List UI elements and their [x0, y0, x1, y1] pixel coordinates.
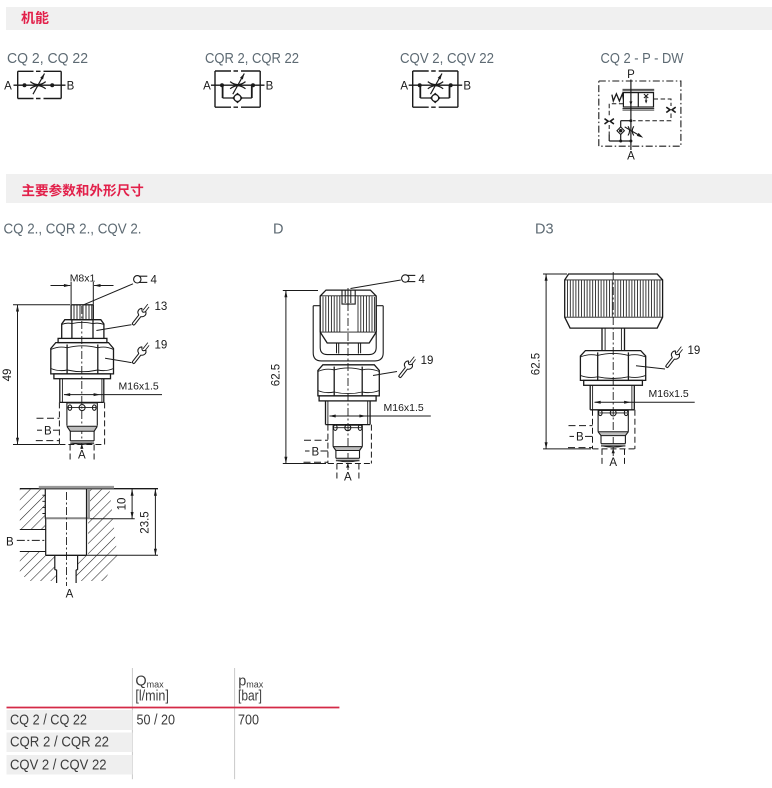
svg-text:A: A — [344, 472, 352, 484]
svg-text:CQV 2 / CQV 22: CQV 2 / CQV 22 — [10, 758, 107, 774]
svg-text:B: B — [67, 81, 75, 93]
svg-text:[l/min]: [l/min] — [135, 689, 169, 705]
svg-text:CQ 2, CQ 22: CQ 2, CQ 22 — [7, 51, 88, 67]
svg-text:M16x1.5: M16x1.5 — [649, 388, 689, 400]
svg-text:D3: D3 — [535, 222, 554, 238]
svg-text:CQV 2, CQV 22: CQV 2, CQV 22 — [400, 51, 494, 67]
svg-text:A: A — [609, 457, 617, 469]
svg-text:19: 19 — [421, 355, 434, 367]
svg-text:B: B — [312, 446, 320, 458]
svg-text:B: B — [266, 81, 274, 93]
svg-text:10: 10 — [117, 498, 129, 511]
svg-text:B: B — [44, 426, 52, 438]
svg-text:49: 49 — [2, 369, 14, 382]
svg-text:23.5: 23.5 — [140, 511, 152, 533]
svg-text:M16x1.5: M16x1.5 — [119, 381, 159, 393]
svg-text:4: 4 — [419, 274, 426, 286]
svg-text:B: B — [576, 432, 584, 444]
svg-text:M8x1: M8x1 — [70, 272, 96, 284]
svg-text:CQR 2 / CQR 22: CQR 2 / CQR 22 — [10, 734, 109, 750]
svg-text:700: 700 — [238, 712, 259, 728]
svg-text:13: 13 — [155, 301, 168, 313]
svg-text:[bar]: [bar] — [238, 689, 262, 705]
svg-text:50 / 20: 50 / 20 — [137, 712, 176, 728]
svg-text:A: A — [78, 450, 86, 462]
svg-text:A: A — [203, 81, 211, 93]
svg-text:CQR 2, CQR 22: CQR 2, CQR 22 — [205, 51, 299, 67]
svg-text:A: A — [400, 81, 408, 93]
svg-text:62.5: 62.5 — [271, 364, 283, 386]
svg-text:D: D — [273, 222, 283, 238]
svg-text:P: P — [627, 69, 635, 81]
svg-text:B: B — [6, 537, 14, 549]
svg-text:B: B — [463, 81, 471, 93]
svg-text:A: A — [627, 151, 635, 163]
svg-text:62.5: 62.5 — [531, 353, 543, 375]
svg-text:19: 19 — [155, 340, 168, 352]
svg-text:CQ 2 / CQ 22: CQ 2 / CQ 22 — [10, 712, 87, 728]
svg-text:4: 4 — [151, 275, 158, 287]
svg-text:CQ 2., CQR 2., CQV 2.: CQ 2., CQR 2., CQV 2. — [4, 222, 142, 238]
svg-text:M16x1.5: M16x1.5 — [384, 402, 424, 414]
svg-text:A: A — [66, 589, 74, 601]
svg-text:19: 19 — [688, 345, 701, 357]
svg-text:A: A — [4, 81, 12, 93]
svg-text:CQ 2 - P - DW: CQ 2 - P - DW — [601, 51, 684, 67]
